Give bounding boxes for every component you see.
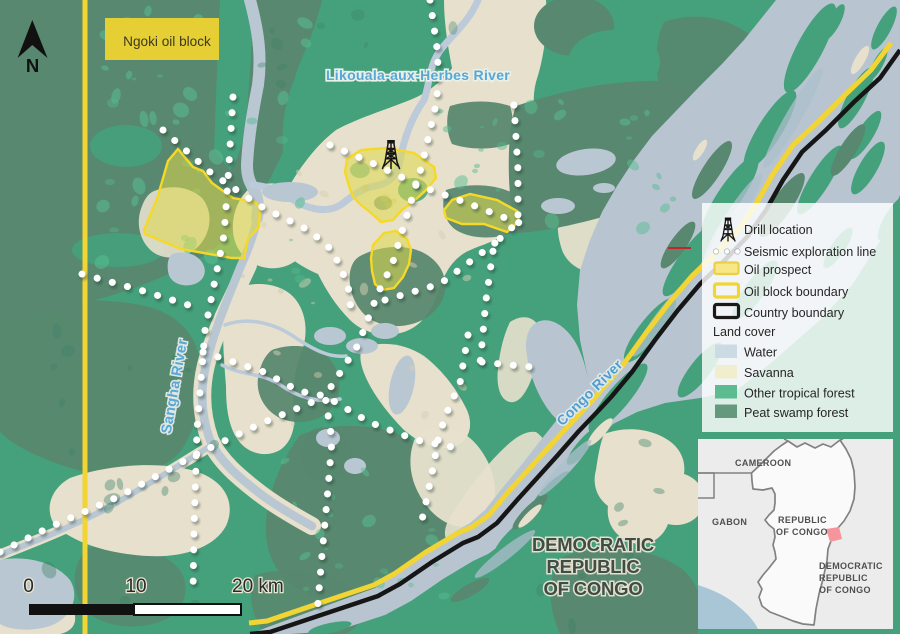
svg-text:Country boundary: Country boundary (744, 306, 845, 320)
svg-text:Savanna: Savanna (744, 366, 794, 380)
svg-text:DEMOCRATIC: DEMOCRATIC (532, 534, 654, 555)
svg-text:GABON: GABON (712, 517, 747, 527)
svg-text:Peat swamp forest: Peat swamp forest (744, 406, 849, 420)
svg-text:20 km: 20 km (232, 576, 284, 597)
svg-text:REPUBLIC: REPUBLIC (819, 573, 868, 583)
svg-text:Land cover: Land cover (713, 325, 775, 339)
svg-text:DEMOCRATIC: DEMOCRATIC (819, 561, 883, 571)
svg-text:REPUBLIC: REPUBLIC (778, 515, 827, 525)
svg-text:OF CONGO: OF CONGO (543, 578, 642, 599)
svg-text:Seismic exploration line: Seismic exploration line (744, 245, 876, 259)
svg-text:N: N (26, 55, 39, 76)
svg-text:Drill location: Drill location (744, 223, 813, 237)
svg-text:Other tropical forest: Other tropical forest (744, 387, 855, 401)
svg-text:Likouala-aux-Herbes River: Likouala-aux-Herbes River (326, 67, 510, 83)
svg-text:0: 0 (23, 576, 34, 597)
svg-text:OF CONGO: OF CONGO (776, 527, 828, 537)
svg-text:Oil prospect: Oil prospect (744, 263, 812, 277)
svg-text:CAMEROON: CAMEROON (735, 458, 791, 468)
svg-text:Ngoki oil block: Ngoki oil block (123, 34, 211, 49)
svg-text:Oil block boundary: Oil block boundary (744, 285, 849, 299)
svg-text:REPUBLIC: REPUBLIC (547, 556, 640, 577)
svg-text:10: 10 (125, 576, 146, 597)
svg-text:Water: Water (744, 346, 777, 360)
svg-text:OF CONGO: OF CONGO (819, 585, 871, 595)
